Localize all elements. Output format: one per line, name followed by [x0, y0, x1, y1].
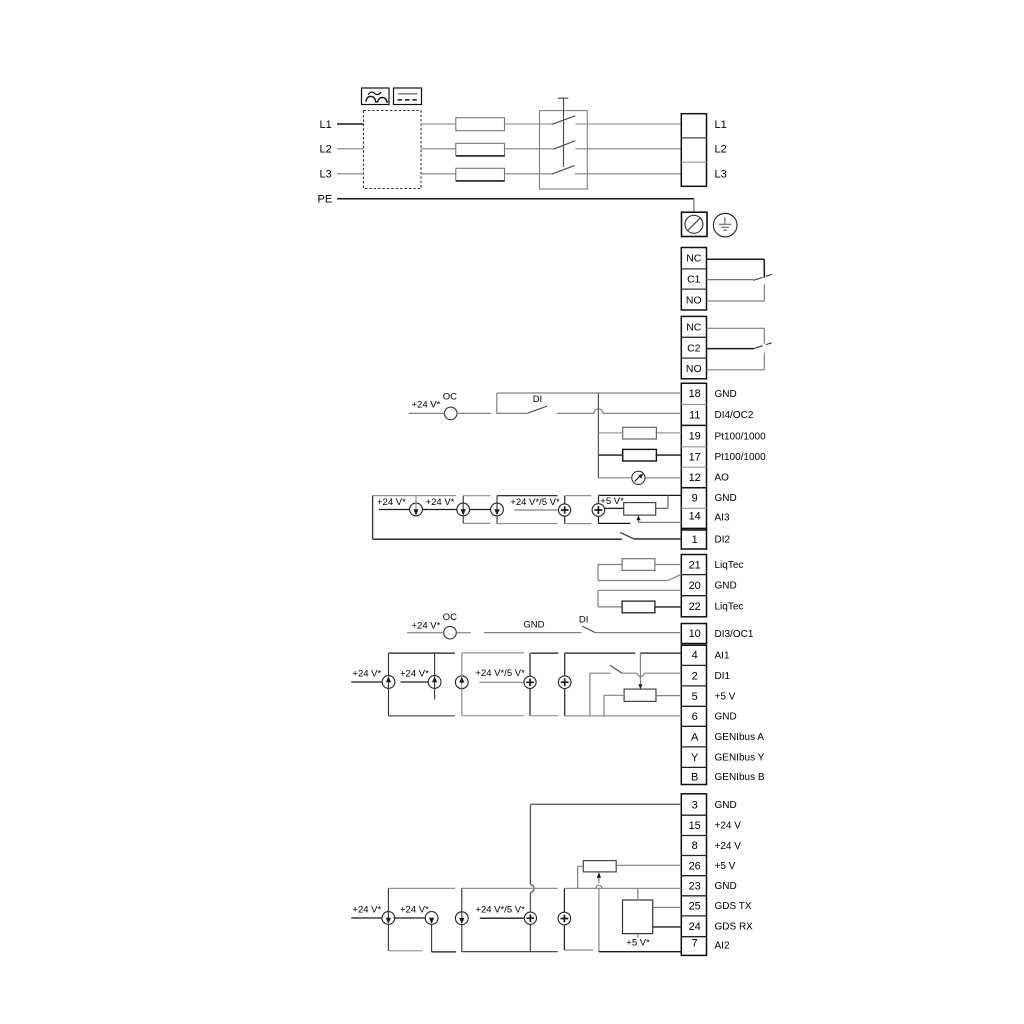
svg-text:GDS RX: GDS RX	[715, 922, 754, 933]
svg-text:Y: Y	[691, 752, 699, 764]
svg-text:+24 V*: +24 V*	[400, 905, 429, 916]
svg-text:AI3: AI3	[715, 513, 730, 524]
svg-text:GND: GND	[715, 800, 737, 811]
svg-text:20: 20	[689, 580, 701, 592]
svg-text:NO: NO	[686, 363, 702, 375]
svg-text:GND: GND	[523, 619, 544, 630]
svg-text:L2: L2	[320, 144, 332, 156]
svg-text:+5 V*: +5 V*	[626, 938, 650, 949]
svg-text:+24 V*: +24 V*	[377, 497, 406, 508]
svg-text:DI3/OC1: DI3/OC1	[715, 629, 754, 640]
svg-text:OC: OC	[443, 612, 457, 623]
svg-text:GENIbus B: GENIbus B	[715, 772, 765, 783]
svg-text:3: 3	[692, 799, 698, 811]
svg-text:18: 18	[689, 388, 701, 400]
svg-text:8: 8	[692, 840, 698, 852]
svg-text:+24 V: +24 V	[715, 841, 742, 852]
svg-text:4: 4	[692, 650, 698, 662]
svg-text:10: 10	[689, 628, 701, 640]
svg-text:+24 V: +24 V	[715, 821, 742, 832]
svg-text:LiqTec: LiqTec	[715, 560, 744, 571]
svg-text:17: 17	[689, 452, 701, 464]
svg-text:DI: DI	[533, 394, 543, 405]
svg-text:+24 V*: +24 V*	[352, 668, 381, 679]
svg-text:GND: GND	[715, 881, 737, 892]
svg-text:+24 V*/5 V*: +24 V*/5 V*	[475, 904, 525, 915]
svg-text:OC: OC	[443, 392, 457, 403]
svg-text:L3: L3	[320, 169, 332, 181]
svg-text:NO: NO	[686, 294, 702, 306]
svg-text:15: 15	[689, 820, 701, 832]
svg-text:2: 2	[692, 670, 698, 682]
svg-text:DI4/OC2: DI4/OC2	[715, 410, 754, 421]
svg-text:6: 6	[692, 711, 698, 723]
svg-text:12: 12	[689, 472, 701, 484]
svg-text:L1: L1	[320, 119, 332, 131]
svg-text:+24 V*: +24 V*	[412, 620, 441, 631]
svg-text:+24 V*/5 V*: +24 V*/5 V*	[475, 668, 525, 679]
svg-text:DI: DI	[579, 615, 589, 626]
svg-text:L2: L2	[715, 144, 727, 156]
svg-text:+24 V*: +24 V*	[426, 497, 455, 508]
svg-text:1: 1	[692, 534, 698, 546]
svg-text:GND: GND	[715, 581, 737, 592]
svg-text:+5 V: +5 V	[715, 691, 736, 702]
svg-text:+5 V*: +5 V*	[600, 496, 624, 507]
svg-text:C2: C2	[687, 342, 701, 354]
svg-text:+24 V*: +24 V*	[412, 399, 441, 410]
svg-text:NC: NC	[686, 253, 702, 265]
svg-text:+24 V*/5 V*: +24 V*/5 V*	[510, 497, 560, 508]
svg-text:26: 26	[689, 860, 701, 872]
svg-text:+24 V*: +24 V*	[400, 668, 429, 679]
svg-text:GDS TX: GDS TX	[715, 901, 752, 912]
svg-text:22: 22	[689, 601, 701, 613]
svg-text:7: 7	[692, 938, 698, 950]
svg-text:L1: L1	[715, 119, 727, 131]
svg-text:C1: C1	[687, 274, 701, 286]
svg-text:A: A	[691, 731, 699, 743]
svg-text:+24 V*: +24 V*	[352, 905, 381, 916]
svg-text:GND: GND	[715, 493, 737, 504]
svg-text:B: B	[691, 771, 698, 783]
svg-text:24: 24	[689, 921, 701, 933]
svg-text:AI1: AI1	[715, 650, 730, 661]
svg-text:GENIbus A: GENIbus A	[715, 732, 765, 743]
svg-text:Pt100/1000: Pt100/1000	[715, 431, 767, 442]
svg-text:14: 14	[689, 510, 701, 522]
svg-text:AO: AO	[715, 473, 730, 484]
svg-text:LiqTec: LiqTec	[715, 602, 744, 613]
svg-text:PE: PE	[318, 194, 333, 206]
svg-text:5: 5	[692, 691, 698, 703]
svg-text:21: 21	[689, 559, 701, 571]
svg-text:25: 25	[689, 901, 701, 913]
svg-text:9: 9	[692, 493, 698, 505]
svg-text:23: 23	[689, 880, 701, 892]
svg-text:11: 11	[689, 410, 700, 422]
svg-text:+5 V: +5 V	[715, 861, 736, 872]
svg-text:19: 19	[689, 431, 701, 443]
svg-text:NC: NC	[686, 322, 702, 334]
svg-text:AI2: AI2	[715, 940, 730, 951]
svg-text:GND: GND	[715, 712, 737, 723]
svg-text:L3: L3	[715, 169, 727, 181]
svg-text:DI1: DI1	[715, 671, 731, 682]
svg-text:GND: GND	[715, 389, 737, 400]
svg-text:GENIbus Y: GENIbus Y	[715, 752, 765, 763]
svg-text:DI2: DI2	[715, 535, 731, 546]
svg-text:Pt100/1000: Pt100/1000	[715, 452, 767, 463]
